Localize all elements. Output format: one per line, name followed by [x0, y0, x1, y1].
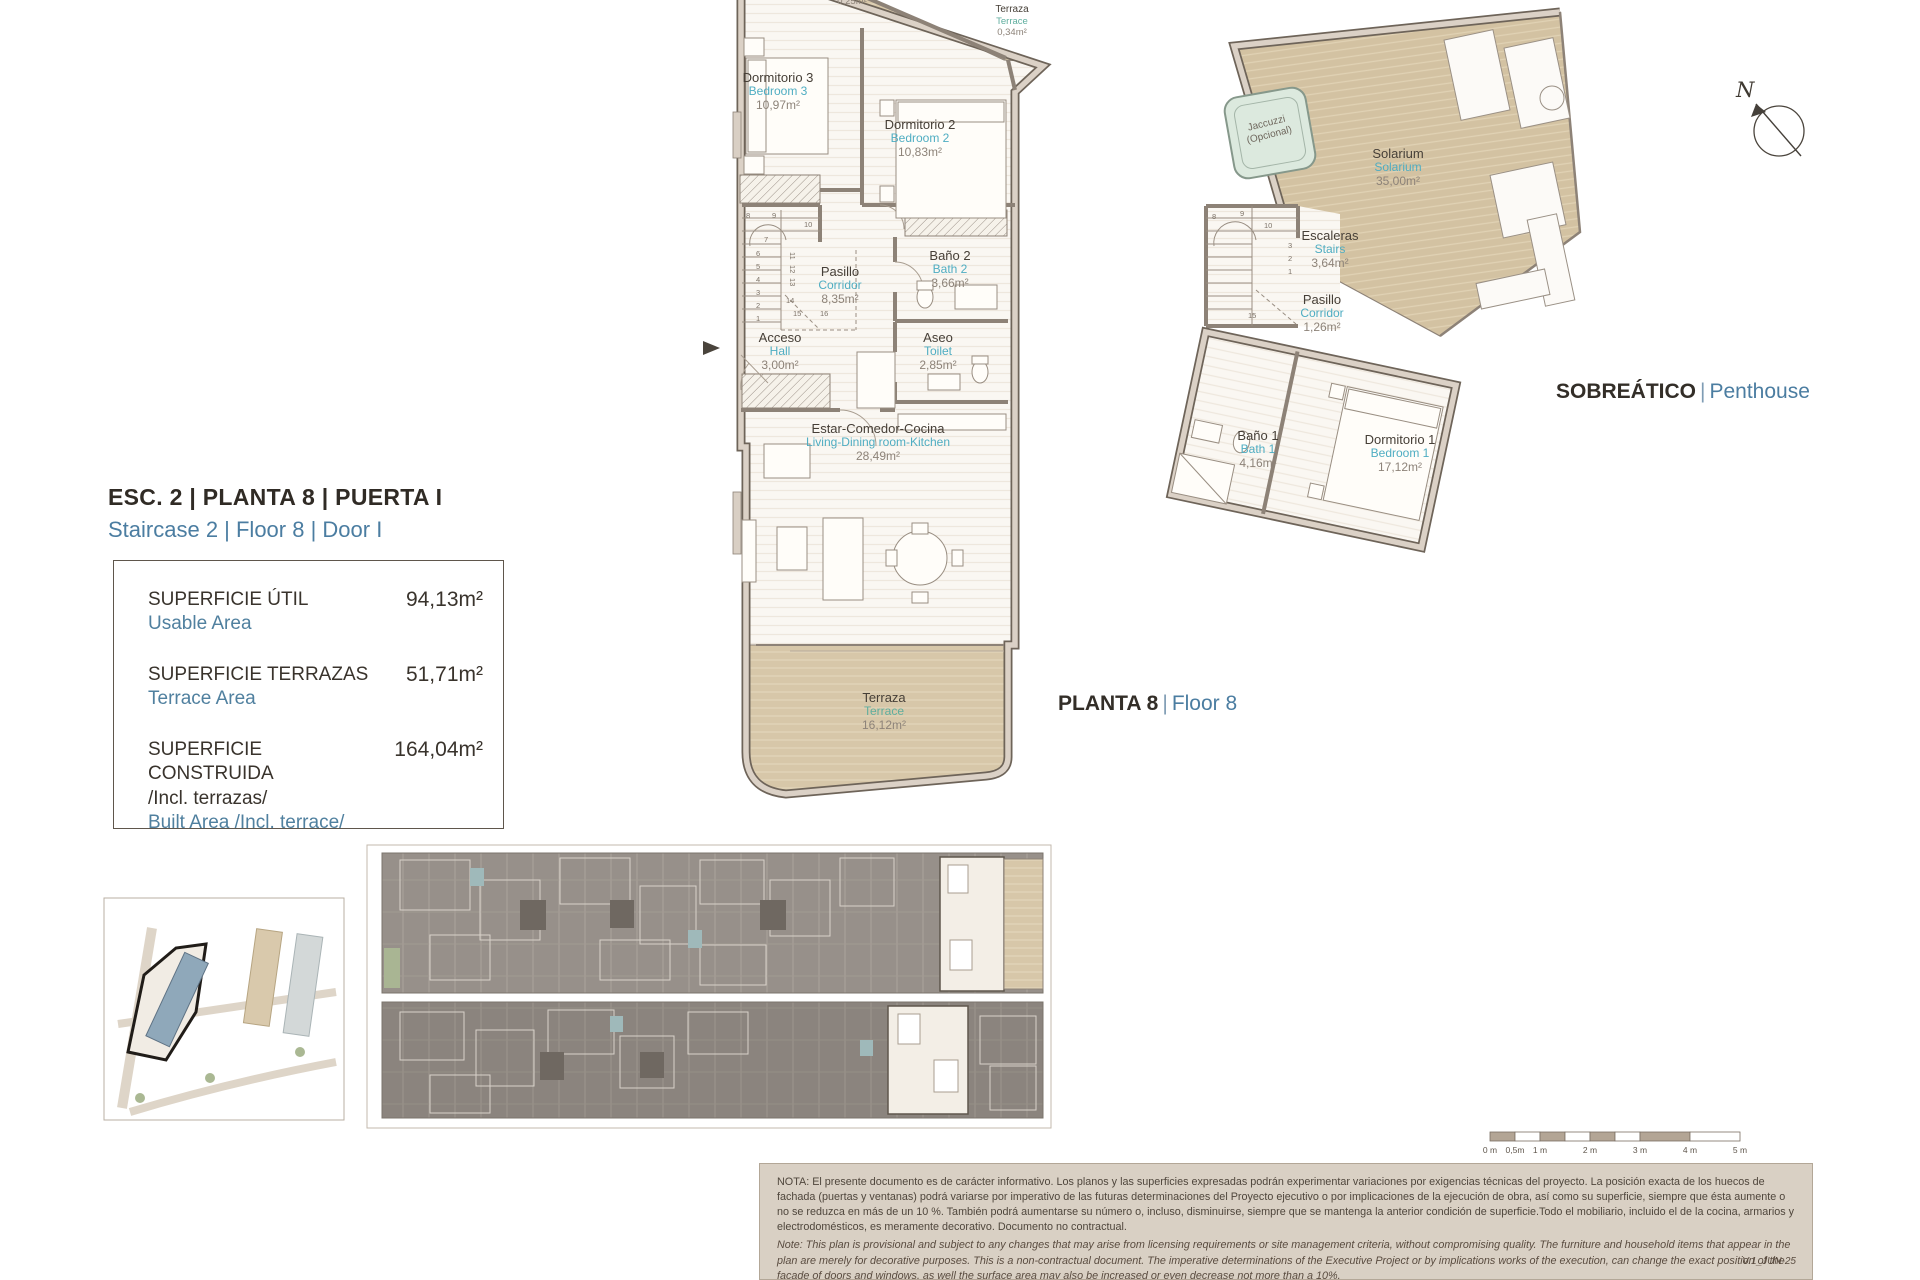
room-name-es: Estar-Comedor-Cocina [806, 421, 950, 436]
penthouse-section-label: SOBREÁTICO|Penthouse [1556, 380, 1810, 404]
room-label-terrace-034: Terraza Terrace 0,34m² [995, 4, 1028, 38]
scale-tick: 0,5m [1506, 1145, 1525, 1155]
plan-identifier: ESC. 2 | PLANTA 8 | PUERTA I Staircase 2… [108, 484, 442, 543]
penthouse-label-es: SOBREÁTICO [1556, 380, 1696, 403]
room-name-en: Corridor [1300, 307, 1343, 321]
room-area: 10,83m² [885, 146, 956, 160]
room-name-en: Terrace [995, 16, 1028, 27]
room-label-stairs: Escaleras Stairs 3,64m² [1301, 228, 1358, 271]
room-label-toilet: Aseo Toilet 2,85m² [919, 330, 956, 373]
row-label-en: Built Area /Incl. terrace/ [148, 811, 386, 835]
row-label-es: SUPERFICIE TERRAZAS [148, 663, 368, 687]
room-name-en: Bedroom 2 [885, 132, 956, 146]
room-name-en: Stairs [1301, 243, 1358, 257]
stair-number: 13 [788, 278, 797, 286]
stair-number: 12 [788, 265, 797, 273]
surface-area-table: SUPERFICIE ÚTIL Usable Area 94,13m² SUPE… [113, 560, 504, 829]
floor8-label-es: PLANTA 8 [1058, 692, 1158, 715]
plan-identifier-spanish: ESC. 2 | PLANTA 8 | PUERTA I [108, 484, 442, 511]
legal-note-spanish: NOTA: El presente documento es de caráct… [777, 1175, 1795, 1235]
window-sill [733, 492, 741, 554]
stair-number: 5 [756, 262, 760, 271]
room-name-es: Dormitorio 2 [885, 117, 956, 132]
armchair [764, 444, 810, 478]
room-label-living: Estar-Comedor-Cocina Living-Dining room-… [806, 421, 950, 464]
room-label-corridor: Pasillo Corridor 8,35m² [818, 264, 861, 307]
room-area: 8,35m² [818, 293, 861, 307]
armchair [777, 527, 807, 570]
room-area: 2,85m² [919, 359, 956, 373]
legal-note-box: NOTA: El presente documento es de caráct… [759, 1163, 1813, 1280]
room-label-terrace: Terraza Terrace 16,12m² [862, 690, 906, 733]
room-name-es: Solarium [1372, 146, 1423, 161]
floor8-label-en: Floor 8 [1172, 692, 1237, 715]
room-name-es: Dormitorio 3 [743, 70, 814, 85]
separator: | [1158, 692, 1171, 715]
room-name-es: Baño 2 [929, 248, 970, 263]
stair-number: 8 [746, 211, 750, 220]
stair-number: 8 [1212, 212, 1216, 221]
stair-number: 10 [804, 220, 812, 229]
room-label-bedroom2: Dormitorio 2 Bedroom 2 10,83m² [885, 117, 956, 160]
scale-tick: 3 m [1633, 1145, 1647, 1155]
room-name-en: Solarium [1372, 161, 1423, 175]
room-name-es: Pasillo [818, 264, 861, 279]
kitchen-column [857, 352, 895, 408]
room-area: 35,00m² [1372, 175, 1423, 189]
stair-number: 10 [1264, 221, 1272, 230]
stair-number: 3 [1288, 241, 1292, 250]
north-compass-icon [1751, 104, 1804, 156]
stair-number: 1 [1288, 267, 1292, 276]
window-sill [733, 112, 741, 158]
stair-number: 15 [1248, 311, 1256, 320]
room-name-en: Toilet [919, 345, 956, 359]
north-label: N [1736, 78, 1754, 102]
room-area: 0,34m² [995, 27, 1028, 38]
highlighted-unit-terrace [1004, 859, 1043, 989]
stair-number: 9 [772, 211, 776, 220]
row-label-en: Usable Area [148, 612, 308, 636]
scale-tick: 5 m [1733, 1145, 1747, 1155]
site-plan-mini [104, 898, 344, 1120]
row-value: 51,71m² [398, 663, 483, 712]
sofa [823, 518, 863, 600]
scale-bar-labels: 0 m 0,5m 1 m 2 m 3 m 4 m 5 m [1470, 1145, 1770, 1159]
stair-number: 3 [756, 288, 760, 297]
keyplan-penthouse [382, 1002, 1043, 1118]
room-area: 3,66m² [929, 277, 970, 291]
room-name-es: Terraza [995, 4, 1028, 16]
room-label-bedroom3: Dormitorio 3 Bedroom 3 10,97m² [743, 70, 814, 113]
floor8-plan: 8 9 10 7 6 5 4 3 2 1 11 12 13 14 15 16 [703, 0, 1043, 794]
stair-number: 6 [756, 249, 760, 258]
scale-tick: 1 m [1533, 1145, 1547, 1155]
room-name-es: Dormitorio 1 [1365, 432, 1436, 447]
side-table [1540, 86, 1564, 110]
room-label-corridor-penthouse: Pasillo Corridor 1,26m² [1300, 292, 1343, 335]
room-area: 16,12m² [862, 719, 906, 733]
room-area: 17,12m² [1365, 461, 1436, 475]
keyplan-floor8 [382, 853, 1043, 993]
penthouse-label-en: Penthouse [1709, 380, 1809, 403]
keyplan-box [367, 845, 1051, 1128]
floorplan-page: 8 9 10 7 6 5 4 3 2 1 11 12 13 14 15 16 [0, 0, 1920, 1280]
sink-aseo [928, 374, 960, 390]
scale-tick: 2 m [1583, 1145, 1597, 1155]
entry-arrow-icon [703, 341, 720, 355]
row-value: 164,04m² [386, 738, 483, 835]
room-name-en: Hall [759, 345, 802, 359]
row-label-es2: /Incl. terrazas/ [148, 787, 386, 811]
row-label-es: SUPERFICIE CONSTRUIDA [148, 738, 386, 787]
room-label-bedroom1: Dormitorio 1 Bedroom 1 17,12m² [1365, 432, 1436, 475]
stair-number: 11 [788, 252, 797, 260]
row-label-es: SUPERFICIE ÚTIL [148, 588, 308, 612]
scale-bar [1490, 1132, 1740, 1141]
room-area: 4,16m² [1237, 457, 1278, 471]
room-label-solarium: Solarium Solarium 35,00m² [1372, 146, 1423, 189]
scale-tick: 4 m [1683, 1145, 1697, 1155]
table-row-terrace-area: SUPERFICIE TERRAZAS Terrace Area 51,71m² [148, 663, 483, 712]
table-row-usable-area: SUPERFICIE ÚTIL Usable Area 94,13m² [148, 588, 483, 637]
room-name-es: Acceso [759, 330, 802, 345]
stair-number: 14 [786, 296, 794, 305]
room-name-en: Bath 2 [929, 263, 970, 277]
room-label-hall: Acceso Hall 3,00m² [759, 330, 802, 373]
plan-identifier-english: Staircase 2 | Floor 8 | Door I [108, 517, 442, 543]
legal-note-english: Note: This plan is provisional and subje… [777, 1238, 1795, 1280]
scale-tick: 0 m [1483, 1145, 1497, 1155]
room-name-en: Bedroom 1 [1365, 447, 1436, 461]
room-name-es: Pasillo [1300, 292, 1343, 307]
floor8-section-label: PLANTA 8|Floor 8 [1058, 692, 1237, 716]
room-area: 10,97m² [743, 99, 814, 113]
plan-version: V.1_JUN-25 [1742, 1256, 1796, 1267]
room-label-terrace-025: 0,25m² [837, 0, 867, 7]
stair-number: 2 [756, 301, 760, 310]
room-name-en: Bath 1 [1237, 443, 1278, 457]
room-area: 0,25m² [837, 0, 867, 7]
room-name-es: Terraza [862, 690, 906, 705]
room-area: 28,49m² [806, 450, 950, 464]
separator: | [1696, 380, 1709, 403]
stair-number: 1 [756, 314, 760, 323]
room-label-bath1: Baño 1 Bath 1 4,16m² [1237, 428, 1278, 471]
room-name-en: Corridor [818, 279, 861, 293]
room-area: 1,26m² [1300, 321, 1343, 335]
keyplan-green [384, 948, 400, 988]
dining-table [893, 531, 947, 585]
room-name-es: Baño 1 [1237, 428, 1278, 443]
stair-number: 9 [1240, 209, 1244, 218]
room-name-en: Terrace [862, 705, 906, 719]
row-value: 94,13m² [398, 588, 483, 637]
stair-number: 16 [820, 309, 828, 318]
table-row-built-area: SUPERFICIE CONSTRUIDA /Incl. terrazas/ B… [148, 738, 483, 835]
row-label-en: Terrace Area [148, 687, 368, 711]
room-name-es: Aseo [919, 330, 956, 345]
room-name-es: Escaleras [1301, 228, 1358, 243]
stair-number: 4 [756, 275, 760, 284]
room-label-bath2: Baño 2 Bath 2 3,66m² [929, 248, 970, 291]
stair-number: 2 [1288, 254, 1292, 263]
room-area: 3,64m² [1301, 257, 1358, 271]
stair-number: 15 [793, 309, 801, 318]
room-name-en: Living-Dining room-Kitchen [806, 436, 950, 450]
tv-cabinet [742, 520, 756, 582]
room-name-en: Bedroom 3 [743, 85, 814, 99]
room-area: 3,00m² [759, 359, 802, 373]
stair-number: 7 [764, 235, 768, 244]
